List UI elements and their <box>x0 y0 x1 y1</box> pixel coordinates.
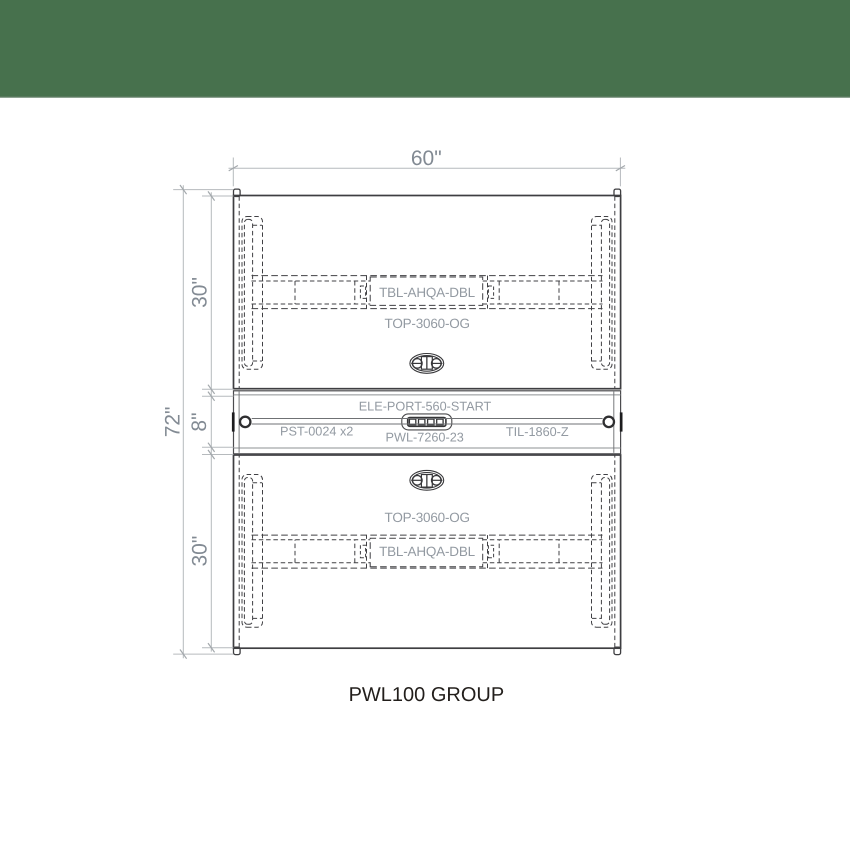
svg-text:TBL-AHQA-DBL: TBL-AHQA-DBL <box>379 544 476 559</box>
svg-text:ELE-PORT-560-START: ELE-PORT-560-START <box>359 399 492 413</box>
svg-text:72": 72" <box>161 406 184 437</box>
svg-text:30": 30" <box>189 277 212 308</box>
svg-text:60": 60" <box>411 147 442 170</box>
svg-text:TIL-1860-Z: TIL-1860-Z <box>506 425 569 439</box>
svg-text:PWL100 GROUP: PWL100 GROUP <box>349 684 505 706</box>
svg-text:8": 8" <box>188 412 211 431</box>
svg-text:TOP-3060-OG: TOP-3060-OG <box>385 316 470 331</box>
svg-text:PST-0024 x2: PST-0024 x2 <box>280 425 353 439</box>
svg-text:TBL-AHQA-DBL: TBL-AHQA-DBL <box>379 285 476 300</box>
svg-text:TOP-3060-OG: TOP-3060-OG <box>385 510 470 525</box>
svg-text:PWL-7260-23: PWL-7260-23 <box>386 430 464 444</box>
svg-text:30": 30" <box>189 536 212 567</box>
